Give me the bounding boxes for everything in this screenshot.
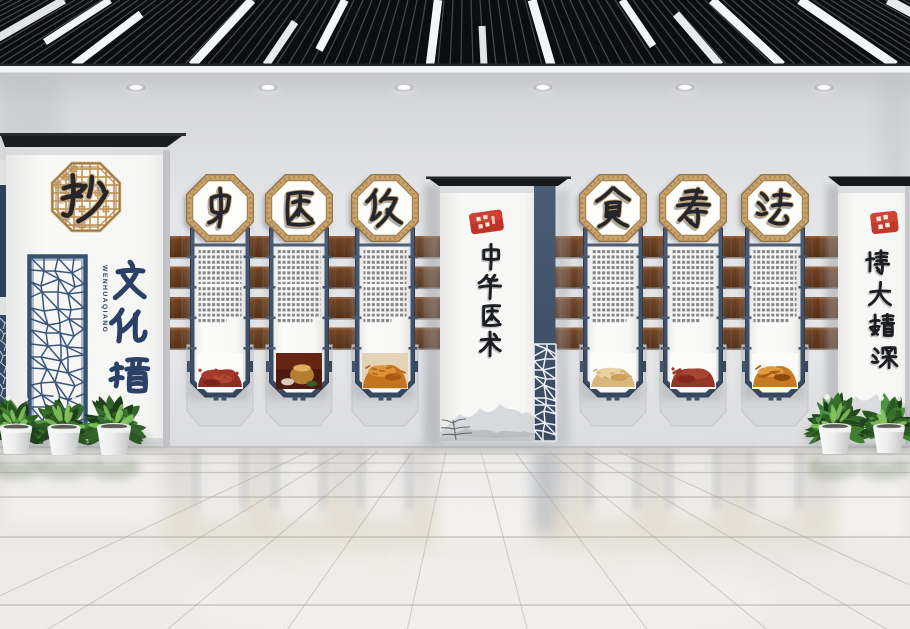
svg-text:WENHUAQIANG: WENHUAQIANG <box>101 265 108 333</box>
